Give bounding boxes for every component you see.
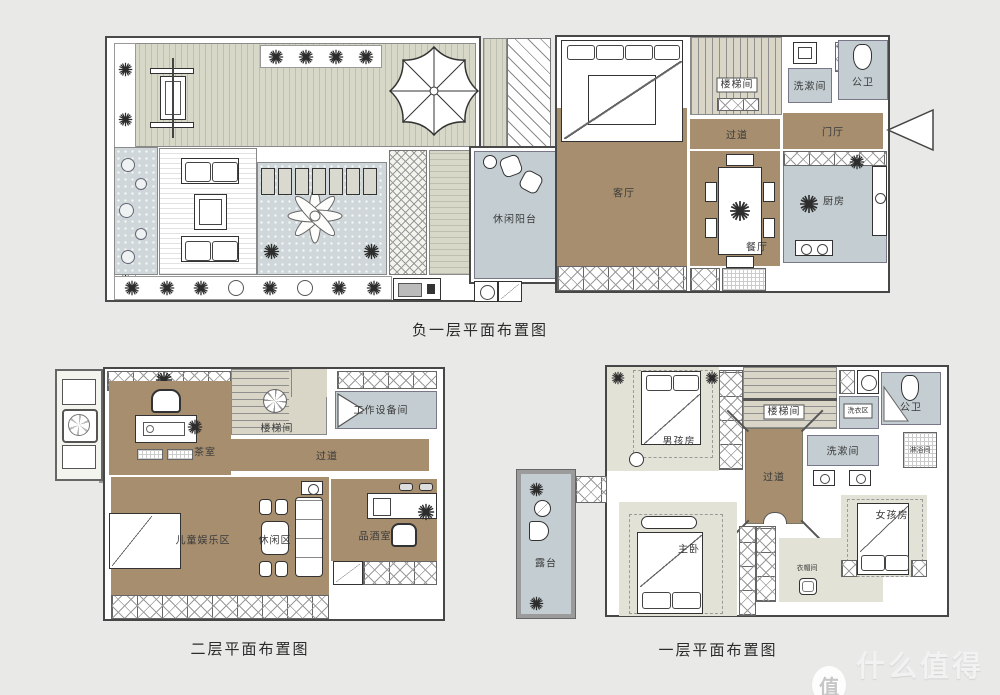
- room-label-foyer: 门厅: [822, 124, 844, 139]
- room-label-wine: 品酒室: [359, 528, 392, 543]
- room-label-boys: 男孩房: [663, 433, 696, 448]
- sink: [813, 470, 835, 486]
- kitchen-counter: [783, 151, 887, 166]
- ottoman: [275, 561, 288, 577]
- dining-chair: [763, 218, 775, 238]
- cabinet: [498, 281, 522, 302]
- patio-umbrella-icon: [387, 44, 481, 138]
- planter-box-top: [260, 45, 382, 68]
- plant-icon: [298, 49, 314, 65]
- sink: [849, 470, 871, 486]
- room-label-cloakroom: 衣帽间: [797, 563, 818, 573]
- cabinet-row: [557, 266, 687, 291]
- room-label-stairwell: 楼梯间: [764, 405, 805, 420]
- smzdm-badge-icon: 值: [812, 666, 846, 695]
- cabinet-row: [337, 371, 437, 389]
- nightstand: [841, 560, 857, 577]
- plant-icon: [729, 200, 751, 222]
- bar-stool: [399, 483, 413, 491]
- toilet: [901, 375, 919, 401]
- plant-icon: [363, 243, 380, 260]
- cabinet-row: [111, 595, 329, 619]
- garden-walkway: [429, 150, 474, 275]
- floor-mat: [137, 449, 163, 460]
- lily-pad: [121, 158, 135, 172]
- kitchen-counter: [872, 166, 887, 236]
- lily-pad: [135, 228, 147, 240]
- room-label-living: 客厅: [613, 185, 635, 200]
- floor-plan-second: 茶室 楼梯间 工作设备间 过道 儿童娱乐区 休闲区 品酒室: [55, 363, 447, 625]
- toilet: [853, 44, 872, 70]
- stepping-stone: [329, 168, 343, 195]
- wardrobe-column: [756, 526, 776, 602]
- equipment-box: [393, 278, 441, 300]
- bar-chair: [391, 523, 417, 547]
- room-label-stairwell: 楼梯间: [717, 78, 758, 93]
- sink: [793, 42, 817, 64]
- stepping-stone: [295, 168, 309, 195]
- patio-table: [534, 500, 551, 517]
- washer: [857, 370, 879, 394]
- sofa: [295, 497, 323, 577]
- plant-icon: [187, 419, 203, 435]
- outdoor-sofa: [181, 158, 239, 184]
- lily-pad: [135, 178, 147, 190]
- stepping-stone: [278, 168, 292, 195]
- plant-icon: [159, 280, 175, 296]
- planter-strip-bottom: [114, 276, 392, 300]
- herringbone-path: [389, 150, 427, 275]
- plant-icon: [262, 280, 278, 296]
- watermark-text: 什么值得买: [856, 643, 1000, 695]
- stepping-stone: [346, 168, 360, 195]
- patio-chair: [529, 521, 549, 541]
- floor-mat: [167, 449, 193, 460]
- lily-pad: [119, 203, 134, 218]
- stepping-stone: [312, 168, 326, 195]
- plant-icon: [611, 371, 625, 385]
- tea-chair: [151, 389, 181, 413]
- plant-icon: [118, 112, 133, 127]
- shrub-icon: [228, 280, 244, 296]
- room-label-corridor: 过道: [763, 469, 785, 484]
- plant-icon: [366, 280, 382, 296]
- stool: [629, 452, 644, 467]
- lily-pad: [121, 250, 135, 264]
- plant-icon: [705, 371, 719, 385]
- washer: [474, 281, 498, 302]
- room-label-washroom: 洗漱间: [827, 443, 860, 458]
- room-label-corridor: 过道: [726, 127, 748, 142]
- shrub-icon: [297, 280, 313, 296]
- plant-icon: [849, 154, 865, 170]
- floor-plan-first: 男孩房 楼梯间 洗衣区 公卫 洗漱间 淋浴间 过道 露台 主卧 衣帽间 女孩房: [517, 358, 952, 626]
- room-label-public-bath: 公卫: [900, 399, 922, 414]
- nightstand: [911, 560, 927, 577]
- room-label-public-bath: 公卫: [852, 74, 874, 89]
- stepping-stone: [363, 168, 377, 195]
- play-mattress: [109, 513, 181, 569]
- bar-stool: [419, 483, 433, 491]
- dining-chair: [763, 182, 775, 202]
- room-label-laundry: 洗衣区: [844, 404, 873, 419]
- room-label-terrace: 露台: [535, 555, 557, 570]
- dining-chair: [726, 256, 754, 268]
- plant-icon: [328, 49, 344, 65]
- bed-bench: [641, 516, 697, 529]
- void-hatch: [507, 38, 551, 148]
- pergola-post: [172, 58, 174, 138]
- plant-icon: [268, 49, 284, 65]
- stove: [795, 240, 833, 256]
- side-patio: [55, 369, 103, 481]
- stepping-stone: [261, 168, 275, 195]
- room-terrace: [517, 470, 575, 618]
- dining-chair: [705, 182, 717, 202]
- ottoman: [259, 561, 272, 577]
- floor-plan-sheet: 休闲阳台 客厅 楼梯间 过道 餐厅 洗漱间 公卫 门厅 厨房 负一层平面布置图: [0, 0, 1000, 695]
- floor-plan-basement: 休闲阳台 客厅 楼梯间 过道 餐厅 洗漱间 公卫 门厅 厨房: [105, 28, 935, 306]
- room-label-stairwell: 楼梯间: [261, 420, 294, 435]
- ottoman: [259, 499, 272, 515]
- garden-ornament-icon: [68, 414, 90, 436]
- stair-landing-edge: [743, 398, 837, 401]
- room-label-kitchen: 厨房: [823, 193, 845, 208]
- plant-icon: [358, 49, 374, 65]
- coffee-table: [194, 194, 227, 230]
- room-label-tea: 茶室: [194, 444, 216, 459]
- plant-icon: [118, 62, 133, 77]
- outdoor-sofa: [181, 236, 239, 262]
- stool: [799, 578, 817, 595]
- wardrobe-column: [739, 526, 756, 616]
- plant-icon: [193, 280, 209, 296]
- plant-icon: [529, 596, 544, 611]
- plant-icon: [263, 243, 280, 260]
- plant-icon: [799, 194, 819, 214]
- watermark: 值 什么值得买: [812, 643, 1000, 695]
- wardrobe-column: [719, 370, 743, 470]
- plan-title-basement: 负一层平面布置图: [330, 319, 630, 340]
- cabinet-row: [363, 561, 437, 585]
- deck-extension: [483, 38, 507, 148]
- room-label-leisure-balcony: 休闲阳台: [493, 211, 537, 226]
- cabinet: [690, 268, 720, 291]
- room-label-dining: 餐厅: [746, 239, 768, 254]
- console-table: [301, 481, 323, 495]
- entry-door-icon: [885, 108, 935, 152]
- plan-title-second: 二层平面布置图: [100, 638, 400, 659]
- flower-icon: [285, 186, 345, 246]
- room-label-equipment: 工作设备间: [354, 402, 409, 417]
- dining-chair: [726, 154, 754, 166]
- room-label-kids-play: 儿童娱乐区: [176, 532, 231, 547]
- side-table: [483, 155, 497, 169]
- room-label-washroom: 洗漱间: [794, 78, 827, 93]
- plant-icon: [331, 280, 347, 296]
- dining-chair: [705, 218, 717, 238]
- cabinet: [575, 476, 607, 503]
- room-label-corridor: 过道: [316, 448, 338, 463]
- stair-landing: [291, 369, 327, 397]
- cabinet: [722, 268, 766, 291]
- room-label-girls: 女孩房: [876, 507, 909, 522]
- ceiling-fan-icon: [263, 389, 287, 413]
- cabinet: [333, 561, 363, 585]
- room-label-shower: 淋浴间: [910, 445, 931, 455]
- room-label-lounge: 休闲区: [259, 532, 292, 547]
- daybed: [561, 40, 683, 142]
- room-label-master: 主卧: [678, 541, 700, 556]
- plant-icon: [529, 482, 544, 497]
- ottoman: [275, 499, 288, 515]
- plant-icon: [417, 503, 435, 521]
- stair-storage: [717, 98, 759, 111]
- cabinet: [839, 370, 855, 394]
- plant-icon: [124, 280, 140, 296]
